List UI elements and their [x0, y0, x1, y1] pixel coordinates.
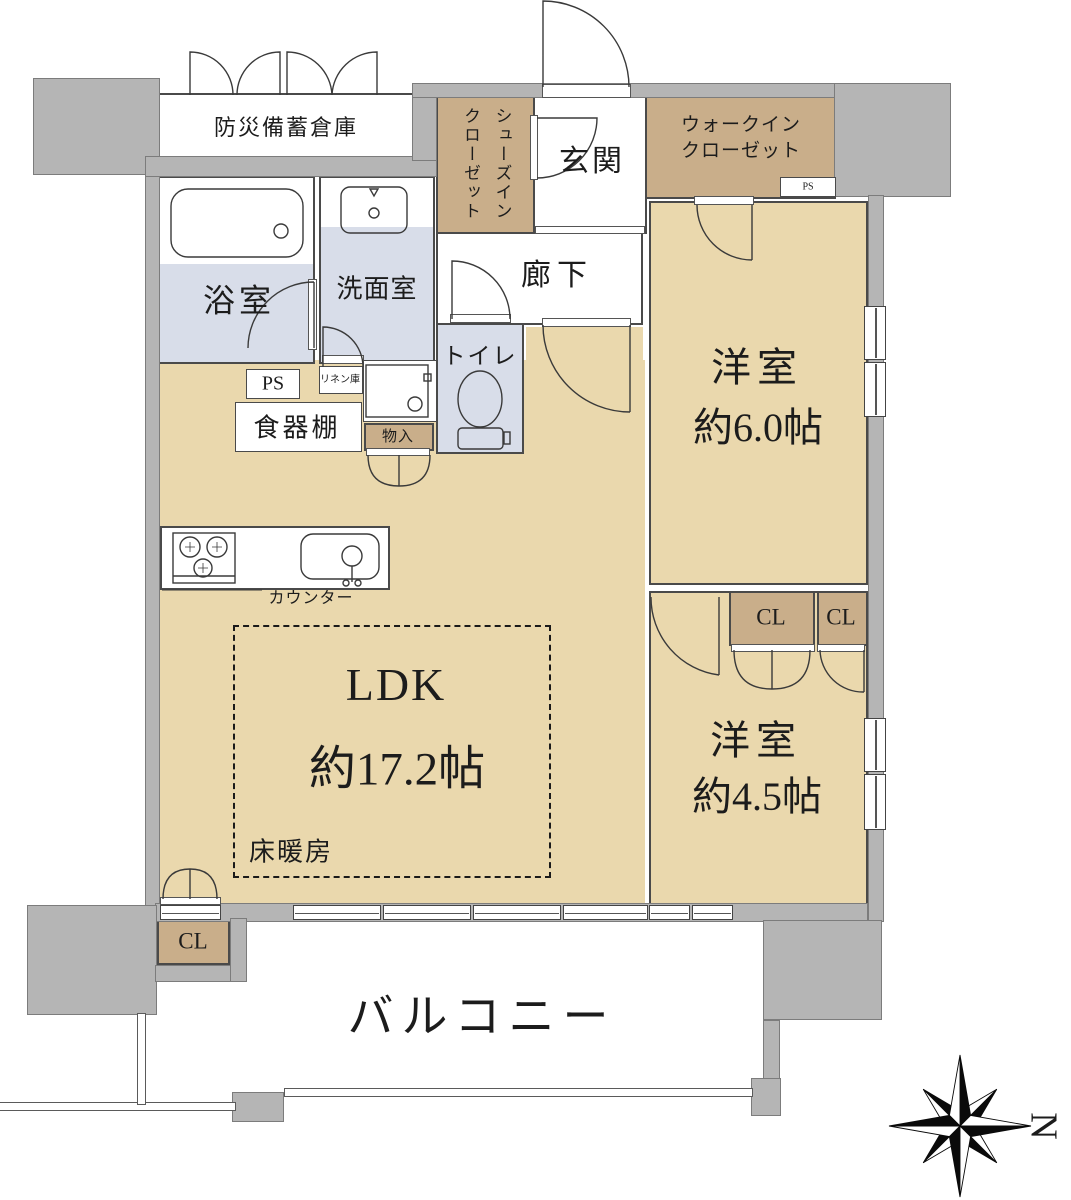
- sill-wic-door: [694, 196, 754, 205]
- label-linen: リネン庫: [320, 373, 360, 387]
- label-north: N: [1017, 1112, 1068, 1139]
- label-monoire: 物入: [382, 427, 414, 447]
- sill-toilet-door: [450, 314, 511, 323]
- wall-balcony-right-block: [763, 920, 882, 1020]
- wall-balcony-left-foot: [232, 1092, 284, 1122]
- sill-cl2: [817, 644, 865, 652]
- label-bedroom2-name: 洋室: [710, 714, 802, 768]
- entrance-step: [535, 226, 645, 234]
- wall-balcony-right-foot: [751, 1078, 781, 1116]
- window-ldk-2: [383, 905, 471, 920]
- sill-washroom-door: [322, 355, 364, 364]
- sill-hall-ldk-door: [542, 318, 631, 327]
- balcony-railing-main: [284, 1088, 753, 1097]
- label-cl1: CL: [756, 601, 785, 632]
- wall-cl-wrap-right: [230, 918, 247, 982]
- label-balcony: バルコニー: [347, 986, 616, 1048]
- storage-doors-icon: [190, 52, 377, 95]
- label-bedroom1-name: 洋室: [711, 341, 803, 395]
- label-entrance: 玄関: [559, 142, 625, 183]
- window-ldk-1: [293, 905, 381, 920]
- label-shoes-in-closet: シューズイン クローゼット: [455, 107, 518, 221]
- label-ldk-size: 約17.2帖: [309, 738, 485, 801]
- label-disaster-storage: 防災備蓄倉庫: [214, 113, 358, 143]
- label-hallway: 廊下: [521, 256, 593, 297]
- window-bedroom2-a: [864, 718, 886, 772]
- front-door-icon: [543, 1, 629, 87]
- window-bedroom2-b: [864, 774, 886, 830]
- label-floor-heating: 床暖房: [249, 834, 333, 869]
- sill-monoire: [366, 448, 430, 456]
- balcony-railing-vertical: [137, 1013, 146, 1105]
- washer-pan-alcove: [363, 360, 437, 422]
- label-cl2: CL: [826, 601, 855, 632]
- window-bedroom2-s2: [692, 905, 733, 920]
- label-bedroom1-size: 約6.0帖: [693, 401, 823, 455]
- window-bedroom1-a: [864, 306, 886, 360]
- wall-top-right-block: [834, 83, 951, 197]
- balcony-railing-left: [0, 1102, 236, 1111]
- window-ldk-4: [563, 905, 648, 920]
- sill-sic-door: [530, 115, 538, 180]
- wall-bottom-left-block: [27, 905, 157, 1015]
- label-bathroom: 浴室: [203, 279, 275, 322]
- wall-top-left-block: [33, 78, 160, 175]
- window-ldk-3: [473, 905, 561, 920]
- sill-closet-bottom-left: [160, 897, 221, 905]
- label-walk-in-closet: ウォークイン クローゼット: [681, 112, 801, 163]
- label-cl-bottom-left: CL: [178, 925, 207, 956]
- label-ps-top: PS: [802, 180, 813, 194]
- window-bedroom1-b: [864, 362, 886, 417]
- label-ps-left: PS: [262, 371, 284, 398]
- ldk-floor-arm: [526, 327, 643, 372]
- label-cupboard: 食器棚: [253, 410, 340, 445]
- label-toilet: トイレ: [443, 340, 518, 371]
- kitchen-counter: [160, 526, 390, 590]
- sill-bath-door: [308, 279, 317, 350]
- front-door-opening: [542, 84, 631, 98]
- label-ldk-name: LDK: [346, 654, 447, 716]
- window-bedroom2-s1: [649, 905, 690, 920]
- wall-left: [145, 175, 160, 907]
- sill-cl1: [731, 644, 815, 652]
- opening-closet-bottom-left: [160, 905, 221, 920]
- label-counter: カウンター: [268, 588, 353, 610]
- floor-plan: 防災備蓄倉庫 シューズイン クローゼット 玄関 ウォークイン クローゼット PS…: [0, 0, 1071, 1200]
- label-bedroom2-size: 約4.5帖: [692, 770, 822, 824]
- label-washroom: 洗面室: [336, 271, 417, 306]
- wall-balcony-right-strip: [763, 1020, 780, 1080]
- wall-storage-bottom: [145, 156, 437, 177]
